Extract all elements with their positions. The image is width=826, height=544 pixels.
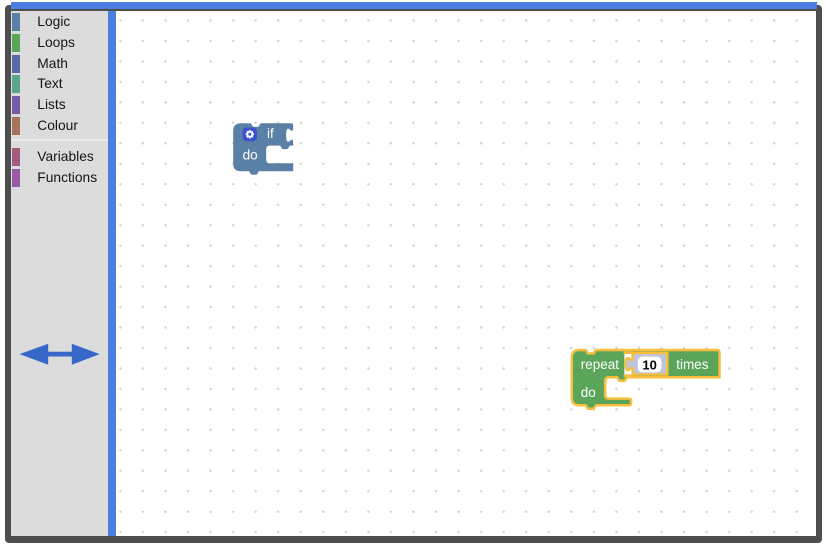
- svg-text:10: 10: [642, 357, 656, 372]
- svg-text:repeat: repeat: [581, 357, 620, 372]
- svg-text:do: do: [581, 385, 596, 400]
- svg-text:do: do: [243, 147, 258, 162]
- svg-text:if: if: [267, 126, 274, 141]
- svg-text:times: times: [676, 357, 709, 372]
